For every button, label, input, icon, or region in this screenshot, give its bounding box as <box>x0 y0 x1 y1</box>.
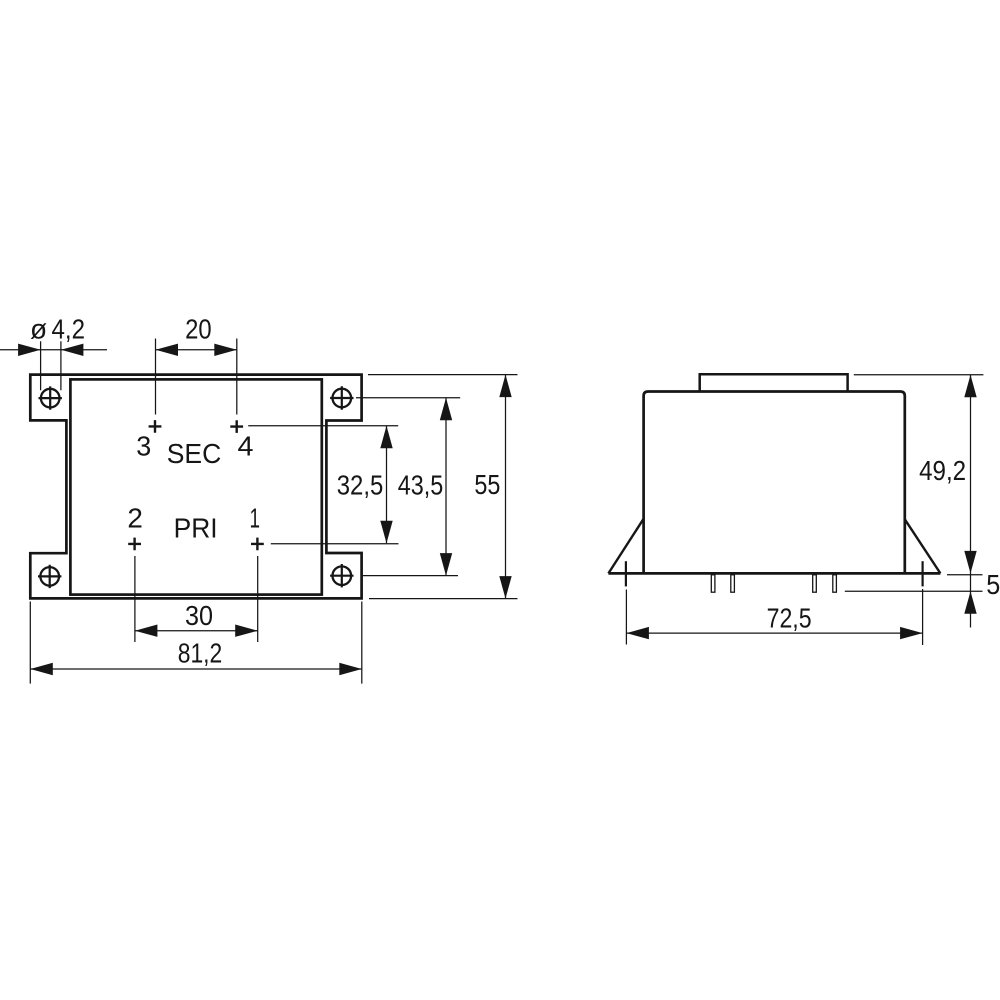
svg-text:32,5: 32,5 <box>337 470 384 501</box>
svg-text:4,2: 4,2 <box>52 313 86 344</box>
svg-text:ø: ø <box>30 314 47 345</box>
svg-text:43,5: 43,5 <box>398 470 444 501</box>
svg-text:SEC: SEC <box>167 438 222 469</box>
svg-text:PRI: PRI <box>174 513 218 544</box>
svg-text:72,5: 72,5 <box>767 603 812 634</box>
svg-text:30: 30 <box>185 600 213 631</box>
svg-text:5: 5 <box>986 569 1000 600</box>
svg-text:2: 2 <box>127 503 143 534</box>
svg-text:3: 3 <box>136 430 151 461</box>
svg-text:81,2: 81,2 <box>178 638 223 669</box>
svg-text:55: 55 <box>474 469 500 500</box>
svg-text:20: 20 <box>185 313 212 344</box>
svg-text:1: 1 <box>250 502 261 533</box>
svg-text:49,2: 49,2 <box>919 455 966 486</box>
svg-text:4: 4 <box>238 431 254 462</box>
